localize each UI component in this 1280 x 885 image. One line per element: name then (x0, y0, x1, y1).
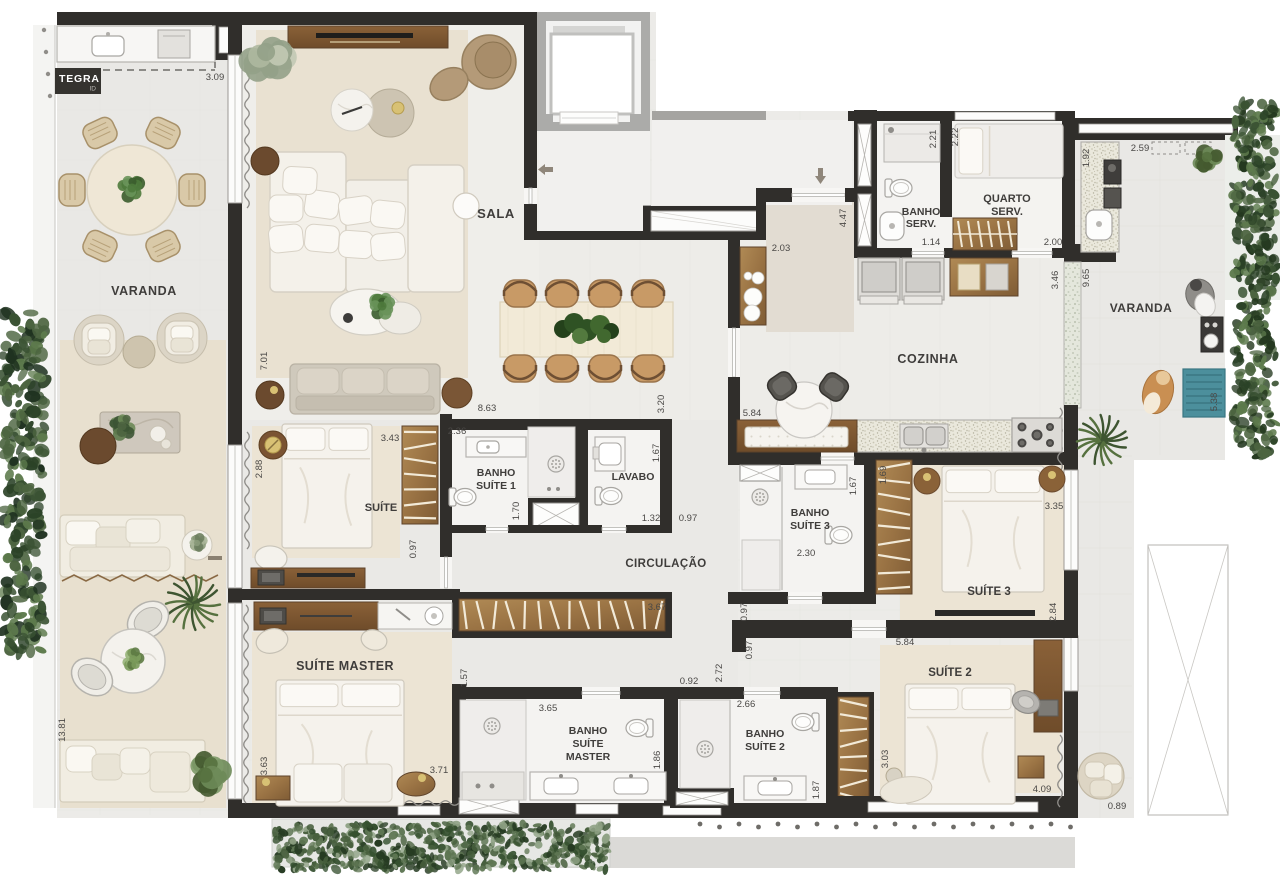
svg-text:2.88: 2.88 (254, 460, 265, 479)
svg-text:2.59: 2.59 (1131, 143, 1150, 154)
svg-text:SUÍTE 1: SUÍTE 1 (476, 479, 516, 492)
svg-text:2.00: 2.00 (1044, 237, 1063, 248)
svg-text:QUARTO: QUARTO (983, 193, 1031, 205)
svg-text:0.97: 0.97 (744, 641, 755, 660)
svg-text:1.67: 1.67 (651, 444, 662, 463)
svg-text:ID: ID (90, 86, 97, 93)
svg-text:SERV.: SERV. (906, 218, 936, 230)
svg-text:0.89: 0.89 (1108, 801, 1127, 812)
svg-text:3.46: 3.46 (1050, 271, 1061, 290)
svg-text:SUÍTE 3: SUÍTE 3 (967, 585, 1010, 598)
svg-text:VARANDA: VARANDA (1110, 301, 1173, 315)
svg-text:3.03: 3.03 (880, 750, 891, 769)
svg-text:TEGRA: TEGRA (59, 73, 100, 85)
svg-text:1.87: 1.87 (811, 781, 822, 800)
svg-text:0.92: 0.92 (680, 676, 699, 687)
svg-text:4.47: 4.47 (838, 209, 849, 228)
svg-text:0.97: 0.97 (679, 513, 698, 524)
svg-text:1.14: 1.14 (922, 237, 941, 248)
svg-text:2.22: 2.22 (950, 128, 961, 147)
svg-text:5.84: 5.84 (743, 408, 762, 419)
svg-text:SUÍTE: SUÍTE (365, 501, 397, 514)
svg-text:5.38: 5.38 (1209, 393, 1220, 412)
svg-text:1.67: 1.67 (848, 477, 859, 496)
svg-text:2.84: 2.84 (1048, 603, 1059, 622)
svg-text:5.84: 5.84 (896, 637, 915, 648)
svg-text:2.36: 2.36 (448, 426, 467, 437)
svg-text:MASTER: MASTER (566, 751, 611, 763)
svg-text:BANHO: BANHO (791, 507, 830, 519)
svg-text:3.20: 3.20 (656, 395, 667, 414)
svg-text:BANHO: BANHO (477, 467, 516, 479)
svg-text:CIRCULAÇÃO: CIRCULAÇÃO (625, 557, 706, 570)
svg-text:VARANDA: VARANDA (111, 284, 177, 298)
svg-text:0.97: 0.97 (408, 540, 419, 559)
svg-text:3.43: 3.43 (381, 433, 400, 444)
svg-text:2.72: 2.72 (714, 664, 725, 683)
svg-text:3.63: 3.63 (259, 757, 270, 776)
svg-text:4.09: 4.09 (1033, 784, 1052, 795)
svg-text:9.65: 9.65 (1081, 269, 1092, 288)
svg-text:COZINHA: COZINHA (897, 352, 958, 366)
svg-text:2.03: 2.03 (772, 243, 791, 254)
svg-text:3.65: 3.65 (539, 703, 558, 714)
svg-text:8.63: 8.63 (478, 403, 497, 414)
svg-text:3.71: 3.71 (430, 765, 449, 776)
svg-text:SALA: SALA (477, 206, 515, 221)
svg-text:SUÍTE: SUÍTE (573, 737, 604, 750)
svg-text:1.92: 1.92 (1081, 149, 1092, 168)
svg-text:2.30: 2.30 (797, 548, 816, 559)
svg-text:1.70: 1.70 (511, 502, 522, 521)
svg-text:1.57: 1.57 (459, 669, 470, 688)
svg-text:1.69: 1.69 (878, 466, 889, 485)
svg-text:1.32: 1.32 (642, 513, 661, 524)
svg-text:3.09: 3.09 (206, 72, 225, 83)
svg-text:3.35: 3.35 (1045, 501, 1064, 512)
svg-text:SUÍTE MASTER: SUÍTE MASTER (296, 658, 394, 673)
svg-text:SUÍTE 3: SUÍTE 3 (790, 519, 830, 532)
svg-text:3.67: 3.67 (648, 602, 667, 613)
svg-text:BANHO: BANHO (569, 725, 608, 737)
svg-text:BANHO: BANHO (902, 206, 941, 218)
svg-text:13.81: 13.81 (57, 718, 68, 742)
svg-text:7.01: 7.01 (259, 352, 270, 371)
svg-text:SUÍTE 2: SUÍTE 2 (928, 666, 971, 679)
svg-text:SUÍTE 2: SUÍTE 2 (745, 740, 785, 753)
svg-text:2.21: 2.21 (928, 130, 939, 149)
svg-text:SERV.: SERV. (991, 206, 1023, 218)
svg-text:0.97: 0.97 (739, 603, 750, 622)
svg-text:1.86: 1.86 (652, 751, 663, 770)
svg-text:2.66: 2.66 (737, 699, 756, 710)
svg-text:LAVABO: LAVABO (612, 471, 655, 483)
svg-text:BANHO: BANHO (746, 728, 785, 740)
